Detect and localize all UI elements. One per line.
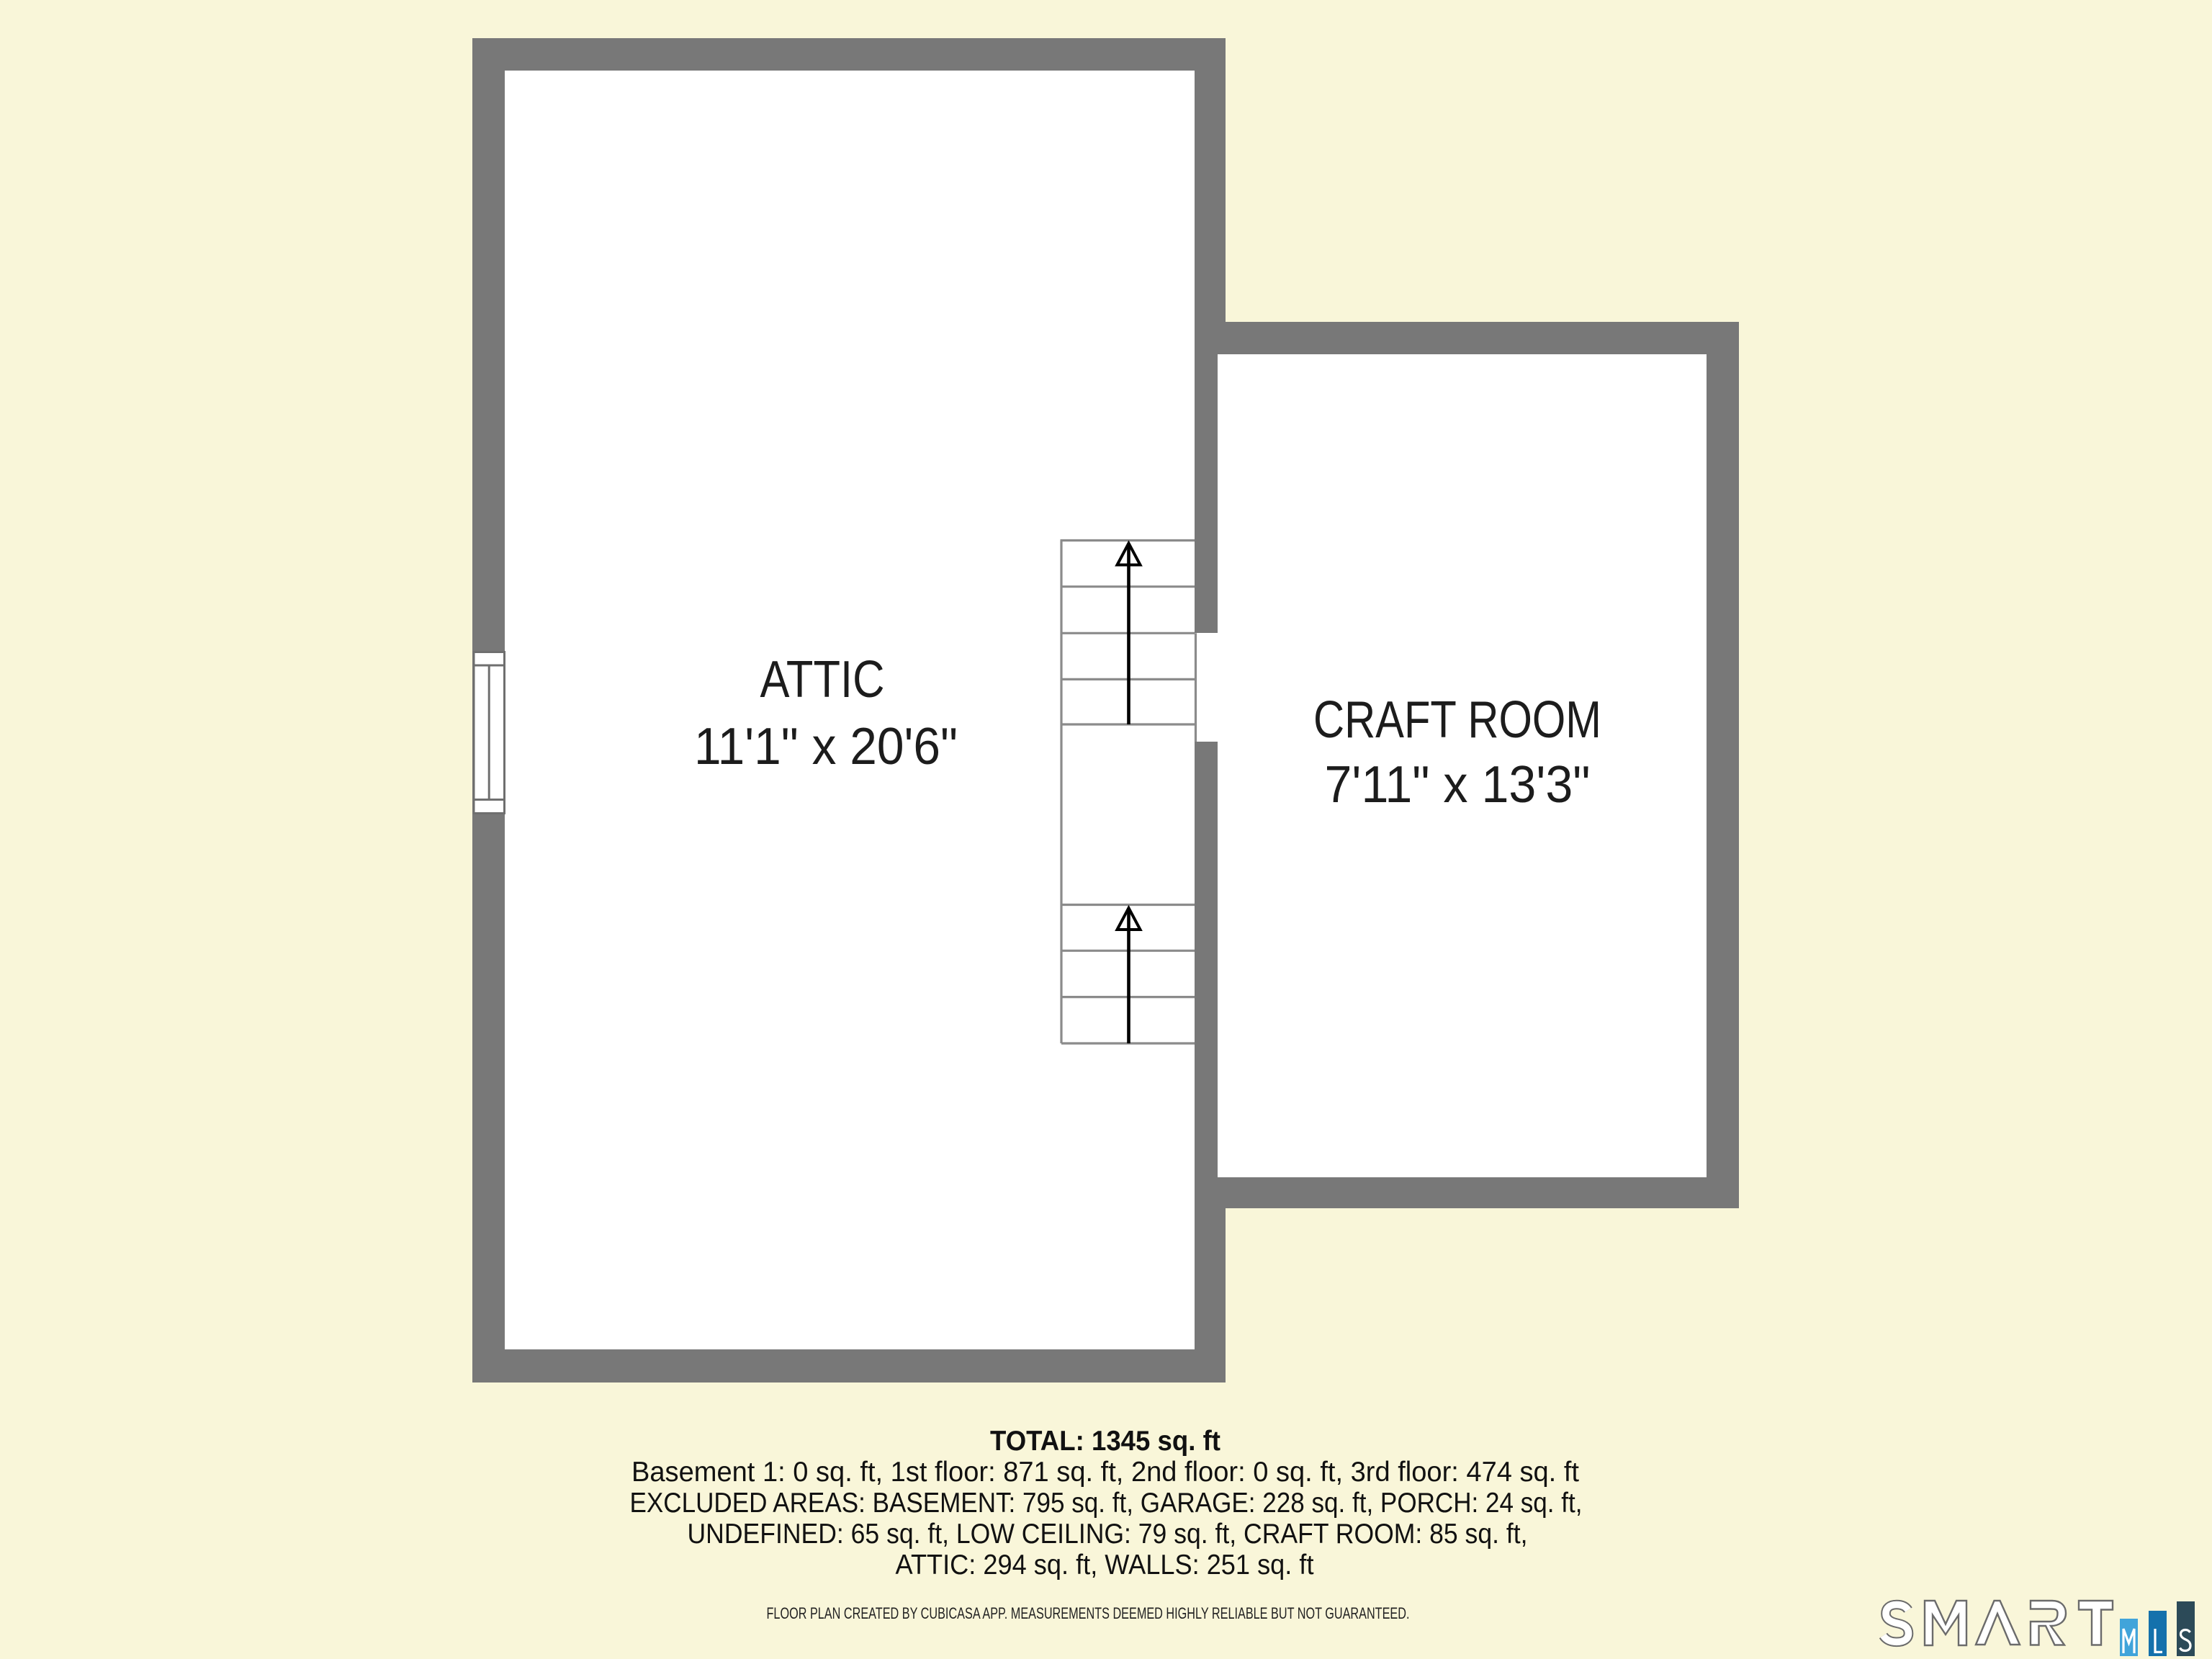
svg-text:UNDEFINED: 65 sq. ft, LOW CEIL: UNDEFINED: 65 sq. ft, LOW CEILING: 79 sq…	[688, 1519, 1528, 1550]
svg-text:11'1" x 20'6": 11'1" x 20'6"	[694, 718, 958, 775]
svg-text:EXCLUDED AREAS: BASEMENT: 795: EXCLUDED AREAS: BASEMENT: 795 sq. ft, GA…	[630, 1488, 1583, 1519]
svg-text:FLOOR PLAN CREATED BY CUBICASA: FLOOR PLAN CREATED BY CUBICASA APP. MEAS…	[767, 1604, 1410, 1622]
svg-text:Basement 1: 0 sq. ft, 1st floo: Basement 1: 0 sq. ft, 1st floor: 871 sq.…	[631, 1457, 1579, 1488]
svg-text:7'11" x 13'3": 7'11" x 13'3"	[1325, 756, 1591, 814]
svg-text:CRAFT ROOM: CRAFT ROOM	[1313, 691, 1601, 749]
svg-text:ATTIC: 294 sq. ft, WALLS: 251: ATTIC: 294 sq. ft, WALLS: 251 sq. ft	[896, 1550, 1314, 1581]
svg-text:TOTAL: 1345 sq. ft: TOTAL: 1345 sq. ft	[990, 1426, 1220, 1457]
svg-text:ATTIC: ATTIC	[760, 651, 885, 709]
